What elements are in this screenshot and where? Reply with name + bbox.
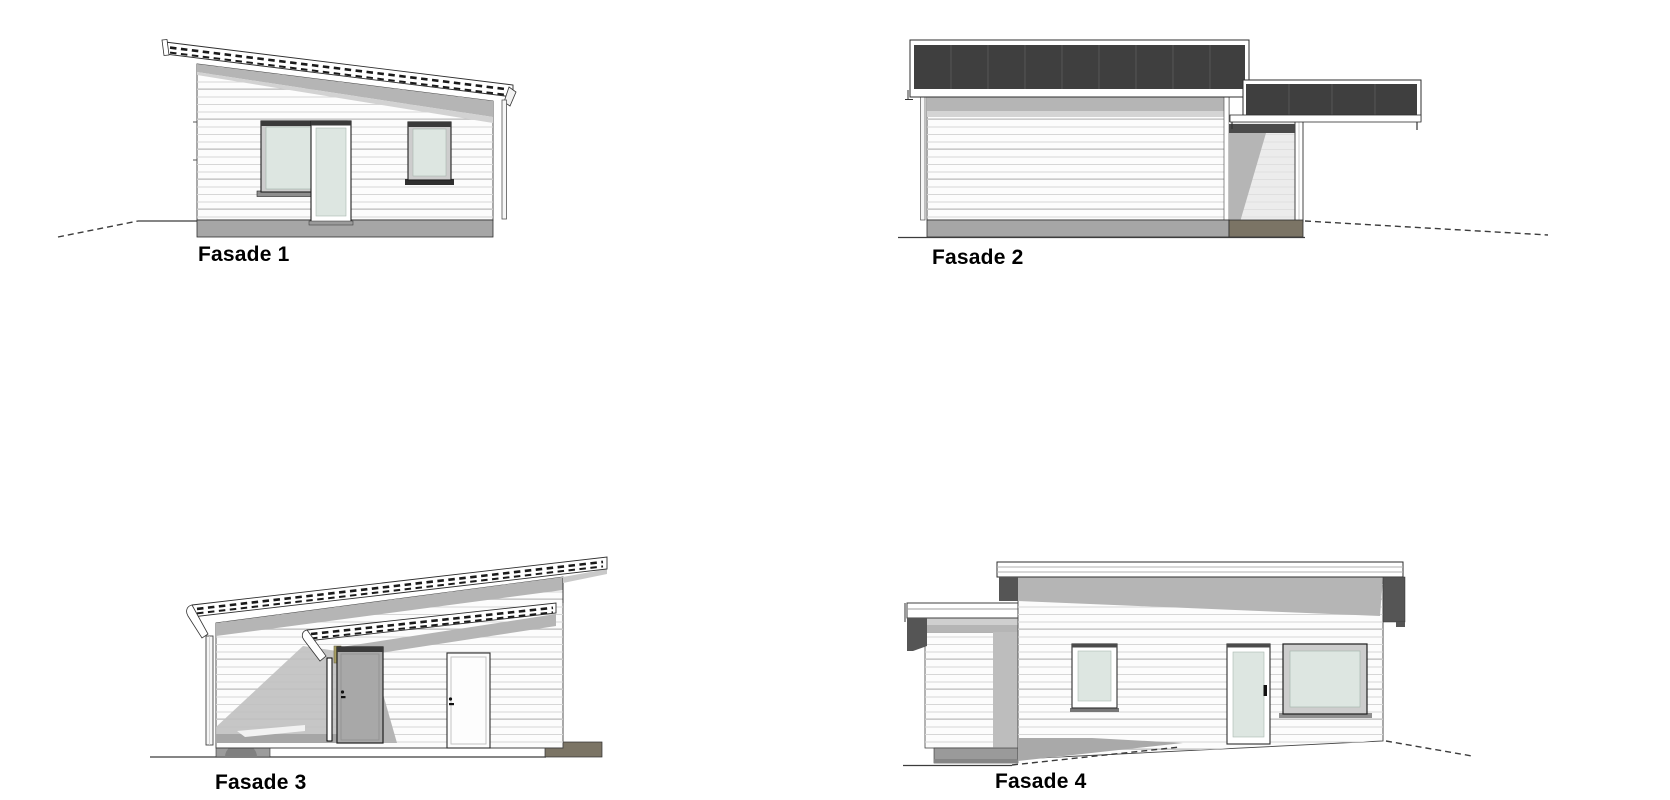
grey-door xyxy=(337,647,383,743)
wall xyxy=(927,97,1229,220)
door-handle xyxy=(341,690,344,693)
facade-1-elevation: Fasade 1 xyxy=(0,0,700,280)
white-door xyxy=(447,653,490,748)
ground-line xyxy=(58,221,197,237)
carport xyxy=(905,603,1018,763)
facade-2-drawing xyxy=(840,0,1570,280)
roof-end-left xyxy=(999,577,1018,601)
elevation-sheet: Fasade 1 xyxy=(0,0,1670,800)
facade-2-elevation: Fasade 2 xyxy=(840,0,1570,280)
facade-3-label: Fasade 3 xyxy=(215,771,307,795)
eaves-shadow xyxy=(927,97,1229,111)
large-window xyxy=(1279,644,1372,718)
small-window xyxy=(1070,644,1119,712)
carport-shadow-strip xyxy=(993,632,1018,748)
roof-end-right xyxy=(1383,577,1405,622)
entrance-door xyxy=(309,121,353,225)
carport-post xyxy=(206,636,213,745)
carport-plinth xyxy=(1229,220,1303,237)
plinth xyxy=(927,220,1303,237)
facade-1-label: Fasade 1 xyxy=(198,243,290,267)
small-window xyxy=(405,122,454,185)
gutter-end-cap xyxy=(162,40,169,56)
facade-4-elevation: Fasade 4 xyxy=(840,530,1570,800)
facade-4-label: Fasade 4 xyxy=(995,770,1087,794)
carport-header xyxy=(1229,124,1295,133)
carport xyxy=(1229,120,1303,222)
main-roof xyxy=(905,40,1250,100)
facade-3-drawing xyxy=(0,530,700,800)
facade-3-elevation: Fasade 3 xyxy=(0,530,700,800)
door-handle xyxy=(449,697,452,700)
downspout xyxy=(921,97,926,220)
facade-4-drawing xyxy=(840,530,1570,800)
carport-fascia xyxy=(907,603,1018,618)
carport-roof-end xyxy=(907,618,927,651)
facade-2-label: Fasade 2 xyxy=(932,246,1024,270)
corner-board xyxy=(1224,97,1229,220)
downspout xyxy=(502,100,507,219)
door-handle xyxy=(1264,685,1268,696)
facade-1-drawing xyxy=(0,0,700,280)
roof-fascia xyxy=(997,562,1403,577)
entrance-door xyxy=(1227,644,1270,744)
